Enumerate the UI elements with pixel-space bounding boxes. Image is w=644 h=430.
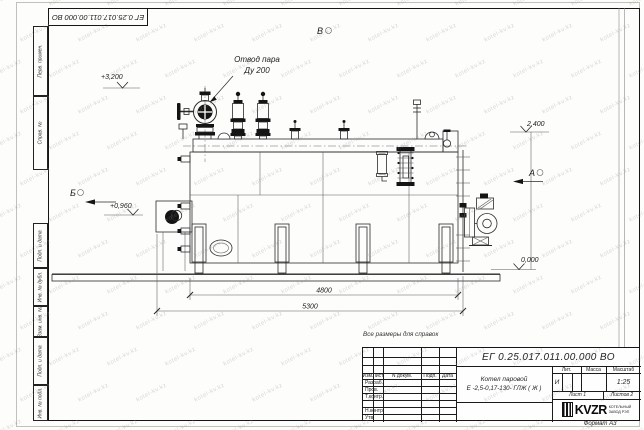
safety-valves [231, 92, 271, 139]
dim-5300: 5300 [302, 304, 318, 311]
mass-header: Масса [581, 366, 606, 373]
drawing-sheet: ЕГ 0.25.017.011.00.000 ВО Перв. примен. … [0, 0, 644, 430]
front-fittings [178, 124, 191, 252]
product-name-line2: Е -2,5-0,17-130- ГЛЖ ( Ж ) [467, 385, 542, 392]
pump-assembly [465, 194, 498, 246]
col-doc: N докум. [383, 373, 421, 379]
company-name: КОТЕЛЬНЫЙ ЗАВОД РЭП [609, 405, 632, 414]
steam-label-line1: Отвод пара [234, 55, 280, 64]
company-cell: KVZR КОТЕЛЬНЫЙ ЗАВОД РЭП [552, 399, 641, 420]
lit-value: И [552, 373, 562, 391]
dimension-lines: 4800 5300 [154, 234, 466, 316]
row-tkontr: Т.контр. [363, 393, 383, 400]
row-nkontr: Н.контр. [363, 407, 383, 414]
centerlines [183, 86, 468, 162]
elevation-right: 2,400 [526, 121, 545, 128]
lit-header: Лит. [552, 366, 581, 373]
elevation-burner: +0,960 [110, 203, 132, 210]
row-razrab: Разраб. [363, 379, 383, 386]
burner-box [156, 201, 192, 271]
dim-4800: 4800 [316, 288, 332, 295]
format-label: Формат А3 [560, 421, 640, 427]
support-legs [192, 224, 453, 273]
row-utv: Утв. [363, 414, 383, 422]
elevation-top: +3,200 [101, 74, 123, 81]
scale-value: 1:25 [606, 373, 641, 391]
title-block: Изм. Лист N докум. Подп. Дата Разраб. Пр… [362, 347, 640, 421]
product-name-line1: Котел паровой [481, 376, 528, 383]
scale-header: Масштаб [606, 366, 641, 373]
col-data: Дата [439, 373, 456, 379]
kvzr-logo-icon [562, 402, 573, 417]
view-b-label: Б [70, 188, 76, 198]
section-markers: Б В А [70, 26, 543, 205]
reference-lines [531, 8, 625, 347]
elevation-ground: 0,000 [521, 257, 539, 264]
ground-hatch [52, 274, 500, 281]
boiler-body [190, 131, 458, 263]
row-prov: Пров. [363, 386, 383, 393]
product-name: Котел паровой Е -2,5-0,17-130- ГЛЖ ( Ж ) [456, 366, 552, 402]
steam-label-line2: Ду 200 [243, 66, 270, 75]
col-podp: Подп. [421, 373, 439, 379]
kvzr-logo-text: KVZR [575, 403, 607, 417]
view-a-label: А [528, 168, 535, 178]
title-doc-number: ЕГ 0.25.017.011.00.000 ВО [456, 348, 641, 366]
view-v-label: В [317, 26, 323, 36]
steam-outlet-callout: Отвод пара Ду 200 [210, 55, 280, 102]
drum-fittings [218, 100, 451, 147]
reference-note: Все размеры для справок [363, 331, 438, 338]
sheet-number: Лист 1 [552, 391, 603, 399]
sheets-total: Листов 2 [603, 391, 641, 399]
